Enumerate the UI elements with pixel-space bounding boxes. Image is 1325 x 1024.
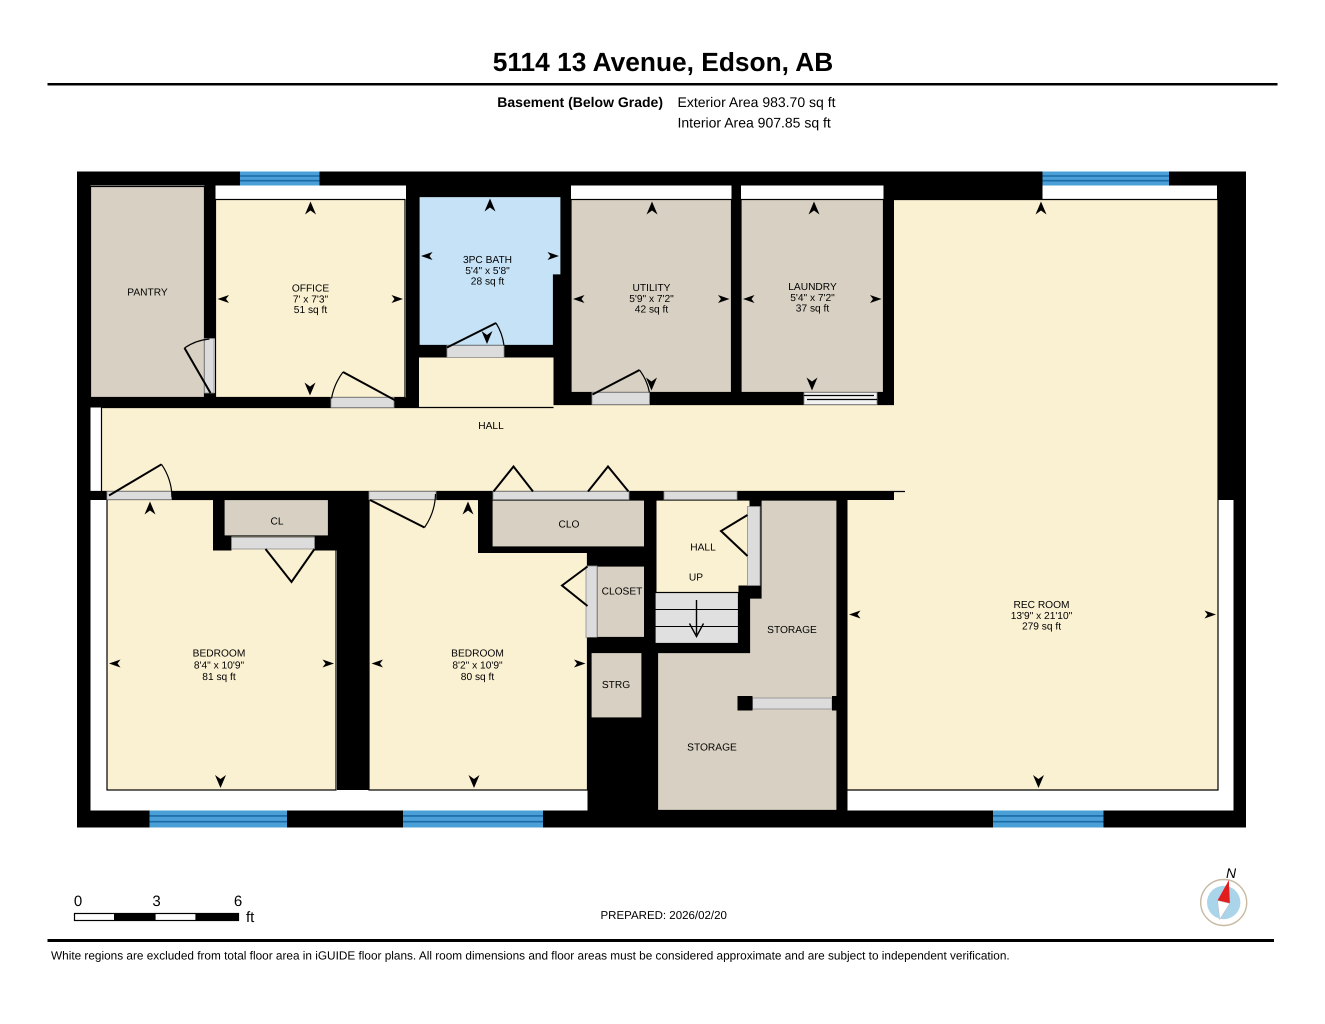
svg-text:51 sq ft: 51 sq ft: [294, 305, 328, 316]
svg-text:Exterior Area 983.70 sq ft: Exterior Area 983.70 sq ft: [678, 94, 836, 110]
svg-text:N: N: [1226, 865, 1237, 881]
svg-text:80 sq ft: 80 sq ft: [461, 672, 495, 683]
svg-text:5'4" x 5'8": 5'4" x 5'8": [465, 266, 510, 277]
svg-text:HALL: HALL: [690, 543, 716, 554]
svg-text:8'2" x 10'9": 8'2" x 10'9": [452, 660, 503, 671]
svg-text:OFFICE: OFFICE: [292, 284, 330, 295]
svg-text:BEDROOM: BEDROOM: [451, 649, 504, 660]
svg-text:279 sq ft: 279 sq ft: [1022, 622, 1061, 633]
svg-text:CLOSET: CLOSET: [602, 587, 643, 598]
svg-text:PREPARED: 2026/02/20: PREPARED: 2026/02/20: [601, 910, 727, 922]
svg-text:3PC BATH: 3PC BATH: [463, 255, 512, 266]
svg-text:28 sq ft: 28 sq ft: [471, 277, 505, 288]
svg-text:Interior Area 907.85 sq ft: Interior Area 907.85 sq ft: [678, 114, 831, 130]
svg-text:8'4" x 10'9": 8'4" x 10'9": [194, 660, 245, 671]
svg-text:ft: ft: [246, 909, 255, 926]
svg-text:3: 3: [152, 893, 160, 910]
svg-text:HALL: HALL: [478, 421, 504, 432]
svg-text:CLO: CLO: [559, 520, 580, 531]
svg-text:37 sq ft: 37 sq ft: [796, 304, 830, 315]
svg-text:13'9" x 21'10": 13'9" x 21'10": [1011, 611, 1073, 622]
svg-text:BEDROOM: BEDROOM: [193, 649, 246, 660]
svg-text:UTILITY: UTILITY: [633, 283, 671, 294]
svg-text:5'9" x 7'2": 5'9" x 7'2": [629, 294, 674, 305]
svg-text:STRG: STRG: [602, 680, 630, 691]
svg-text:CL: CL: [270, 517, 283, 528]
svg-text:White regions are excluded fro: White regions are excluded from total fl…: [51, 949, 1010, 963]
svg-text:REC ROOM: REC ROOM: [1013, 600, 1069, 611]
svg-text:STORAGE: STORAGE: [767, 625, 817, 636]
svg-text:STORAGE: STORAGE: [687, 743, 737, 754]
svg-text:0: 0: [74, 893, 82, 910]
svg-text:7' x 7'3": 7' x 7'3": [293, 294, 329, 305]
svg-text:5'4" x 7'2": 5'4" x 7'2": [790, 293, 835, 304]
svg-text:5114 13 Avenue, Edson, AB: 5114 13 Avenue, Edson, AB: [493, 47, 834, 77]
svg-text:UP: UP: [689, 573, 703, 584]
svg-text:42 sq ft: 42 sq ft: [635, 305, 669, 316]
svg-text:6: 6: [234, 893, 242, 910]
svg-text:PANTRY: PANTRY: [127, 288, 168, 299]
svg-text:81 sq ft: 81 sq ft: [202, 672, 236, 683]
svg-text:Basement (Below Grade): Basement (Below Grade): [497, 94, 663, 110]
svg-text:LAUNDRY: LAUNDRY: [788, 282, 837, 293]
